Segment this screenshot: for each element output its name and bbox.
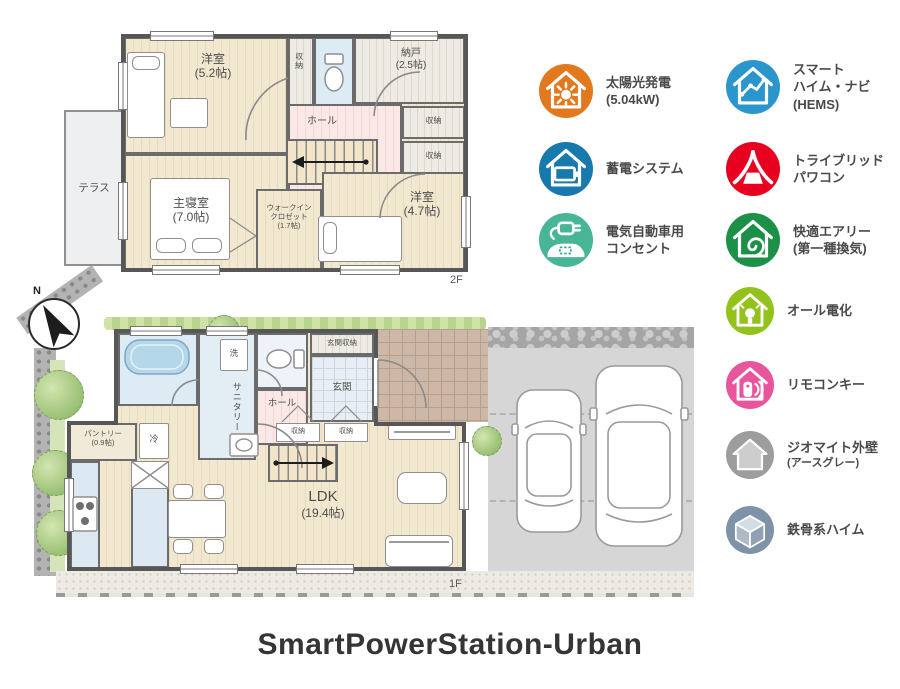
- terrace-label: テラス: [66, 182, 122, 195]
- legend-item-battery: 蓄電システム: [539, 142, 684, 196]
- floor-label-2f: 2F: [450, 274, 463, 286]
- stairs-arrow-2f: [292, 156, 369, 168]
- legend-item-remote-key: リモコンキー: [726, 361, 865, 409]
- ldk-label: LDK (19.4帖): [275, 488, 371, 520]
- key-house-icon: [726, 361, 774, 409]
- door-arcs-1f: [172, 360, 426, 468]
- storage-1f-b-label: 収納: [324, 428, 368, 436]
- wic-label: ウォークイン クロゼット (1.7帖): [260, 203, 318, 230]
- nando-label: 納戸 (2.5帖): [374, 48, 448, 72]
- sink-cross: [132, 462, 168, 488]
- gray-house-icon: [726, 431, 774, 479]
- washbasin: [230, 434, 258, 456]
- bulb-house-icon: [726, 287, 774, 335]
- car-small: [512, 390, 586, 532]
- legend-item-hems: スマートハイム・ナビ(HEMS): [726, 60, 870, 114]
- bedroom-5-2-label: 洋室 (5.2帖): [165, 52, 261, 81]
- genkan-storage-label: 玄関収納: [311, 338, 373, 347]
- floor-label-1f: 1F: [449, 578, 462, 590]
- battery-house-icon: [539, 142, 593, 196]
- storage-r2-label: 収納: [402, 151, 465, 161]
- compass-n-label: N: [33, 285, 41, 297]
- legend-item-ev: 電気自動車用コンセント: [539, 213, 684, 267]
- cube-icon: [726, 506, 774, 554]
- stove: [73, 497, 97, 531]
- spiral-house-icon: [726, 213, 780, 267]
- genkan-label: 玄関: [312, 382, 372, 393]
- car-large: [590, 366, 688, 546]
- storage-r1-label: 収納: [402, 116, 465, 126]
- hall-1f-label: ホール: [258, 398, 306, 409]
- wash-label: 洗: [224, 348, 244, 358]
- hall-2f-label: ホール: [292, 116, 352, 128]
- toilet-fixture-1f: [267, 350, 304, 368]
- pantry-label: パントリー (0.9帖): [71, 429, 135, 447]
- legend-item-airy: 快適エアリー(第一種換気): [726, 213, 871, 267]
- closet-2f-label: 収納: [294, 52, 304, 70]
- stairs-arrow-1f: [273, 457, 334, 469]
- legend-item-steel-heim: 鉄骨系ハイム: [726, 506, 864, 554]
- bedroom-4-7-label: 洋室 (4.7帖): [382, 190, 462, 219]
- graph-house-icon: [726, 60, 780, 114]
- legend-item-tribrid: トライブリッドパワコン: [726, 142, 884, 196]
- legend-item-all-electric: オール電化: [726, 287, 852, 335]
- toilet-fixture-2f: [325, 54, 343, 91]
- sun-house-icon: [539, 64, 593, 118]
- sanitary-label: サニタリー: [231, 382, 242, 432]
- floorplan-canvas: テラス 洋室 (5.2帖) 収納 納戸 (2.5帖) ホール 収納 収納 主寝室…: [0, 0, 900, 689]
- tribrid-icon: [726, 142, 780, 196]
- fridge-label: 冷: [139, 434, 169, 445]
- storage-1f-a-label: 収納: [276, 428, 320, 436]
- product-title: SmartPowerStation-Urban: [0, 628, 900, 662]
- legend-item-geomite: ジオマイト外壁(アースグレー): [726, 431, 878, 479]
- legend-item-solar: 太陽光発電(5.04kW): [539, 64, 671, 118]
- compass-needle-icon: [33, 299, 75, 347]
- ev-plug-icon: [539, 213, 593, 267]
- bathtub: [125, 340, 189, 374]
- master-bedroom-label: 主寝室 (7.0帖): [148, 196, 234, 225]
